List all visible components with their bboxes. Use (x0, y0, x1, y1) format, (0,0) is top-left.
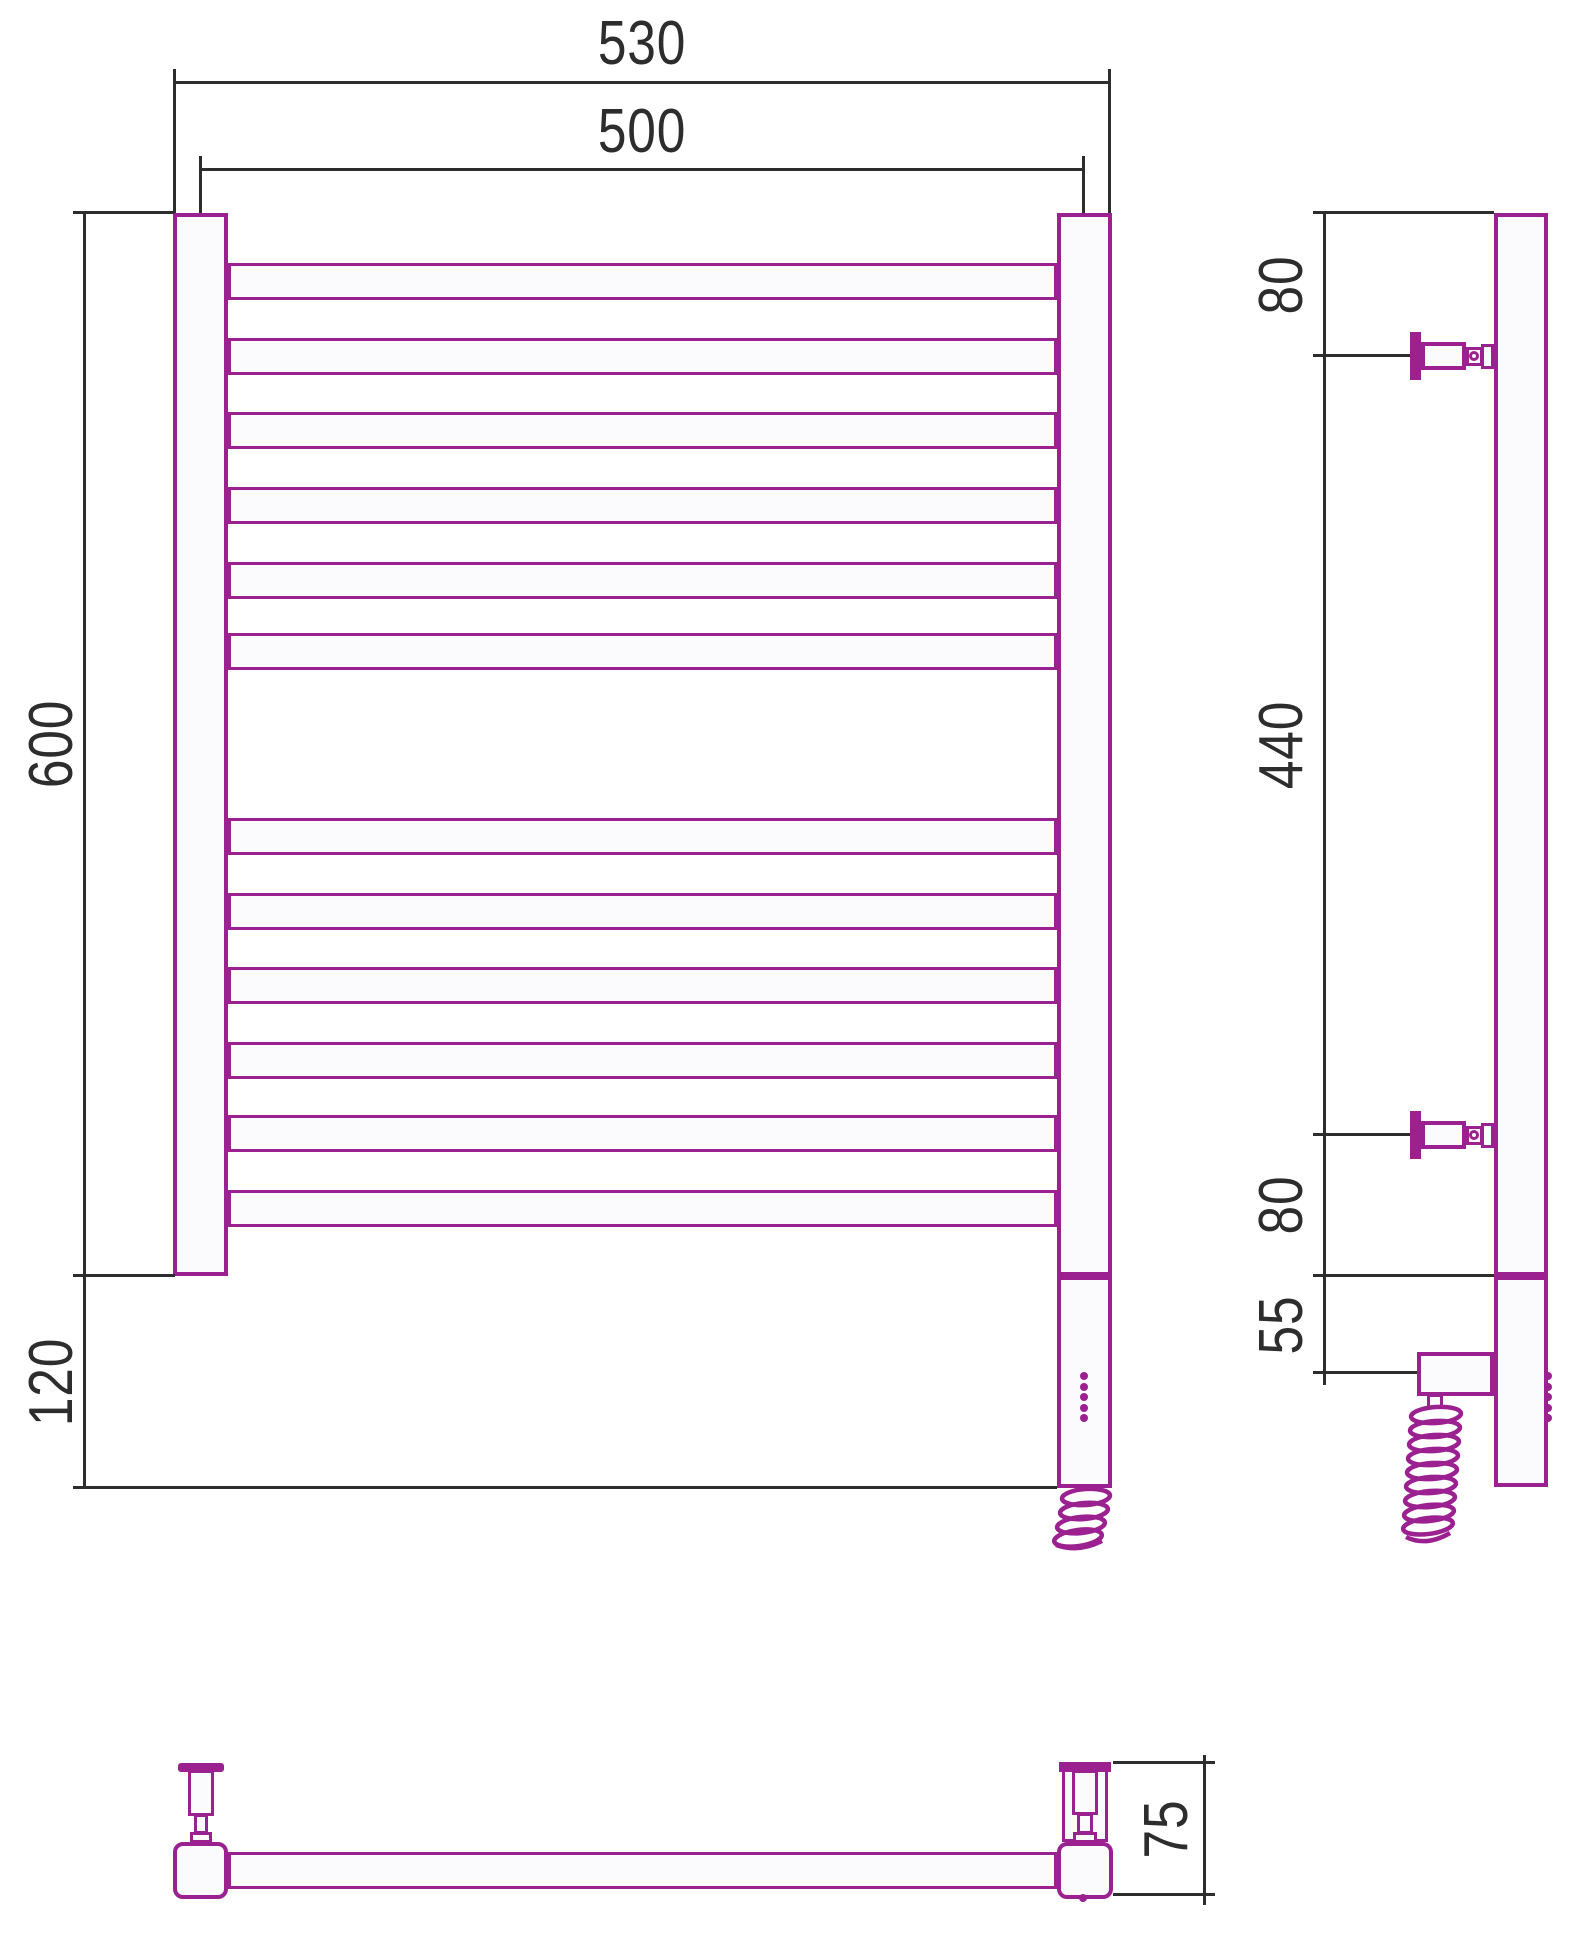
rung (228, 967, 1057, 1004)
rung (228, 263, 1057, 300)
dim-600-label: 600 (20, 620, 84, 869)
dim-500-ext-right (1082, 156, 1085, 213)
rung (228, 487, 1057, 524)
side-tick-rail-bottom (1313, 1274, 1494, 1277)
rung (228, 1115, 1057, 1152)
led-dot (1080, 1414, 1088, 1422)
led-dot (1080, 1393, 1088, 1401)
power-cord-coil-icon (1050, 1489, 1120, 1553)
rung (228, 562, 1057, 599)
bottom-tube (228, 1852, 1057, 1889)
rung (228, 338, 1057, 375)
left-post-section (173, 1842, 228, 1899)
power-cord-coil-icon (1398, 1407, 1470, 1547)
heater-box-side (1417, 1352, 1494, 1396)
rung (228, 1190, 1057, 1227)
left-post (173, 213, 228, 1276)
rung (228, 633, 1057, 670)
led-dot (1544, 1404, 1552, 1412)
dim-500-line (201, 168, 1084, 171)
dim-75-line (1203, 1755, 1206, 1905)
dim-80-top-label: 80 (1250, 161, 1314, 410)
towel-rail-technical-drawing: 530 500 600 120 (0, 0, 1571, 1920)
dim-600-tick-bottom (73, 1274, 175, 1277)
dim-530-line (174, 81, 1111, 84)
side-tick-element (1313, 1371, 1417, 1374)
dim-120-label: 120 (20, 1258, 84, 1507)
dim-55-label: 55 (1250, 1201, 1314, 1450)
side-profile-bar (1494, 213, 1548, 1276)
led-dot (1544, 1393, 1552, 1401)
right-post (1057, 213, 1112, 1276)
rung (228, 893, 1057, 930)
dim-600-tick-top (73, 211, 174, 214)
led-dot (1544, 1414, 1552, 1422)
dim-500-label: 500 (518, 100, 767, 164)
led-dot (1544, 1383, 1552, 1391)
dim-120-bottom-line (73, 1486, 1057, 1489)
side-dim-line (1323, 213, 1326, 1385)
side-heater-section (1494, 1276, 1548, 1487)
right-post-section (1057, 1842, 1113, 1899)
led-dot-bottom (1079, 1894, 1087, 1902)
dim-530-ext-right (1108, 69, 1111, 213)
dim-440-label: 440 (1250, 621, 1314, 870)
rung (228, 1042, 1057, 1079)
led-dot (1080, 1383, 1088, 1391)
dim-75-label: 75 (1135, 1705, 1199, 1954)
dim-530-ext-left (173, 69, 176, 213)
dim-530-label: 530 (518, 12, 767, 76)
led-dot (1080, 1372, 1088, 1380)
rung (228, 818, 1057, 855)
led-dot (1080, 1404, 1088, 1412)
dim-500-ext-left (199, 156, 202, 213)
rung (228, 412, 1057, 449)
side-tick-bracket-upper (1313, 354, 1410, 357)
led-dot (1544, 1372, 1552, 1380)
side-tick-top (1313, 211, 1494, 214)
side-tick-bracket-lower (1313, 1133, 1410, 1136)
heater-unit-front (1057, 1276, 1112, 1488)
